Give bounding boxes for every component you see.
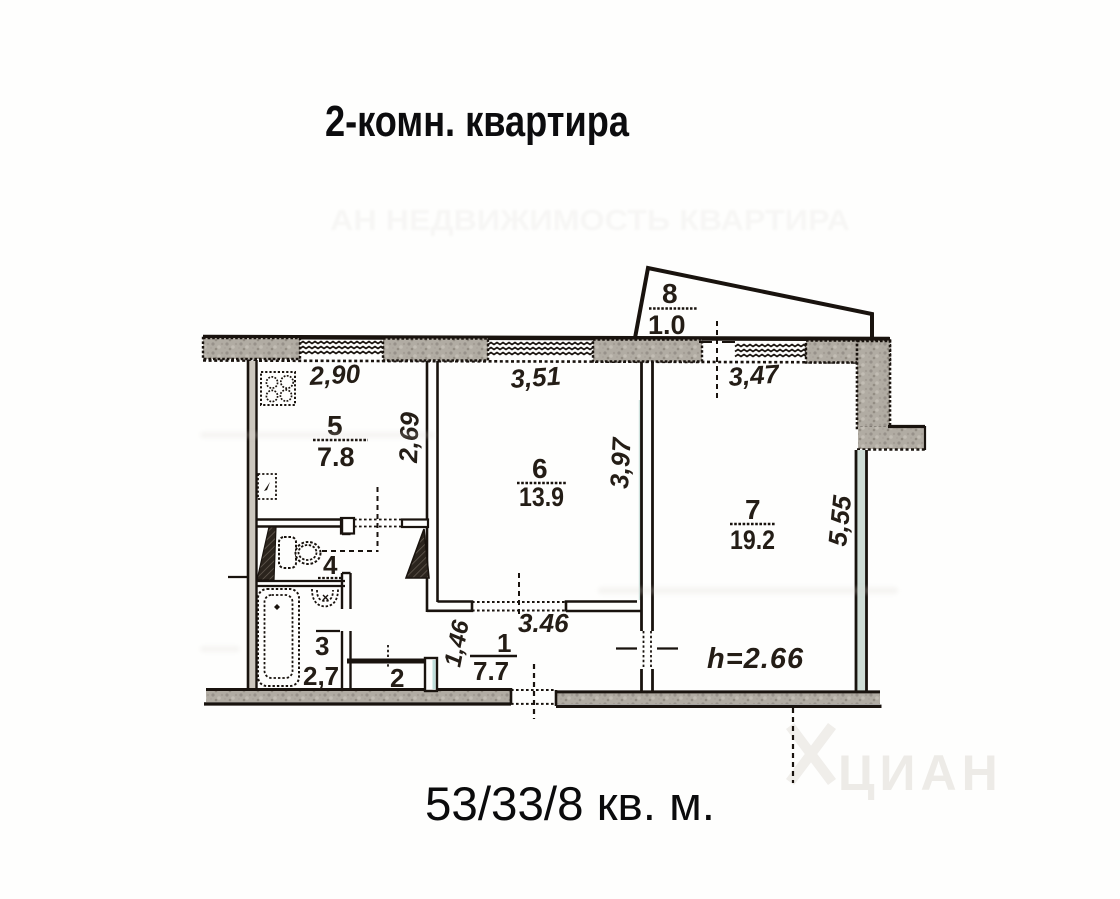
svg-text:7.8: 7.8 [317,442,355,472]
svg-text:h=2.66: h=2.66 [707,643,804,675]
svg-text:АН НЕДВИЖИМОСТЬ КВАРТИРА: АН НЕДВИЖИМОСТЬ КВАРТИРА [330,205,850,237]
svg-text:2,90: 2,90 [308,358,362,391]
svg-text:2: 2 [390,663,404,693]
svg-text:3: 3 [315,631,329,661]
svg-text:1.0: 1.0 [648,310,686,340]
svg-text:8: 8 [662,278,678,309]
svg-text:6: 6 [532,453,548,484]
svg-text:3,97: 3,97 [604,436,637,490]
svg-text:7: 7 [745,494,761,525]
svg-text:3.46: 3.46 [518,608,569,638]
svg-text:19.2: 19.2 [730,525,775,555]
svg-text:1: 1 [497,628,511,658]
svg-text:7.7: 7.7 [473,656,509,686]
svg-text:3,51: 3,51 [509,361,562,394]
svg-text:13.9: 13.9 [519,482,564,512]
svg-text:2,7: 2,7 [303,661,339,691]
svg-text:3,47: 3,47 [727,358,781,392]
svg-text:ЦИАН: ЦИАН [838,745,1003,801]
svg-text:4: 4 [323,550,338,580]
svg-text:2-комн. квартира: 2-комн. квартира [325,97,629,146]
svg-text:5,55: 5,55 [822,494,857,548]
svg-text:53/33/8 кв. м.: 53/33/8 кв. м. [425,777,715,830]
